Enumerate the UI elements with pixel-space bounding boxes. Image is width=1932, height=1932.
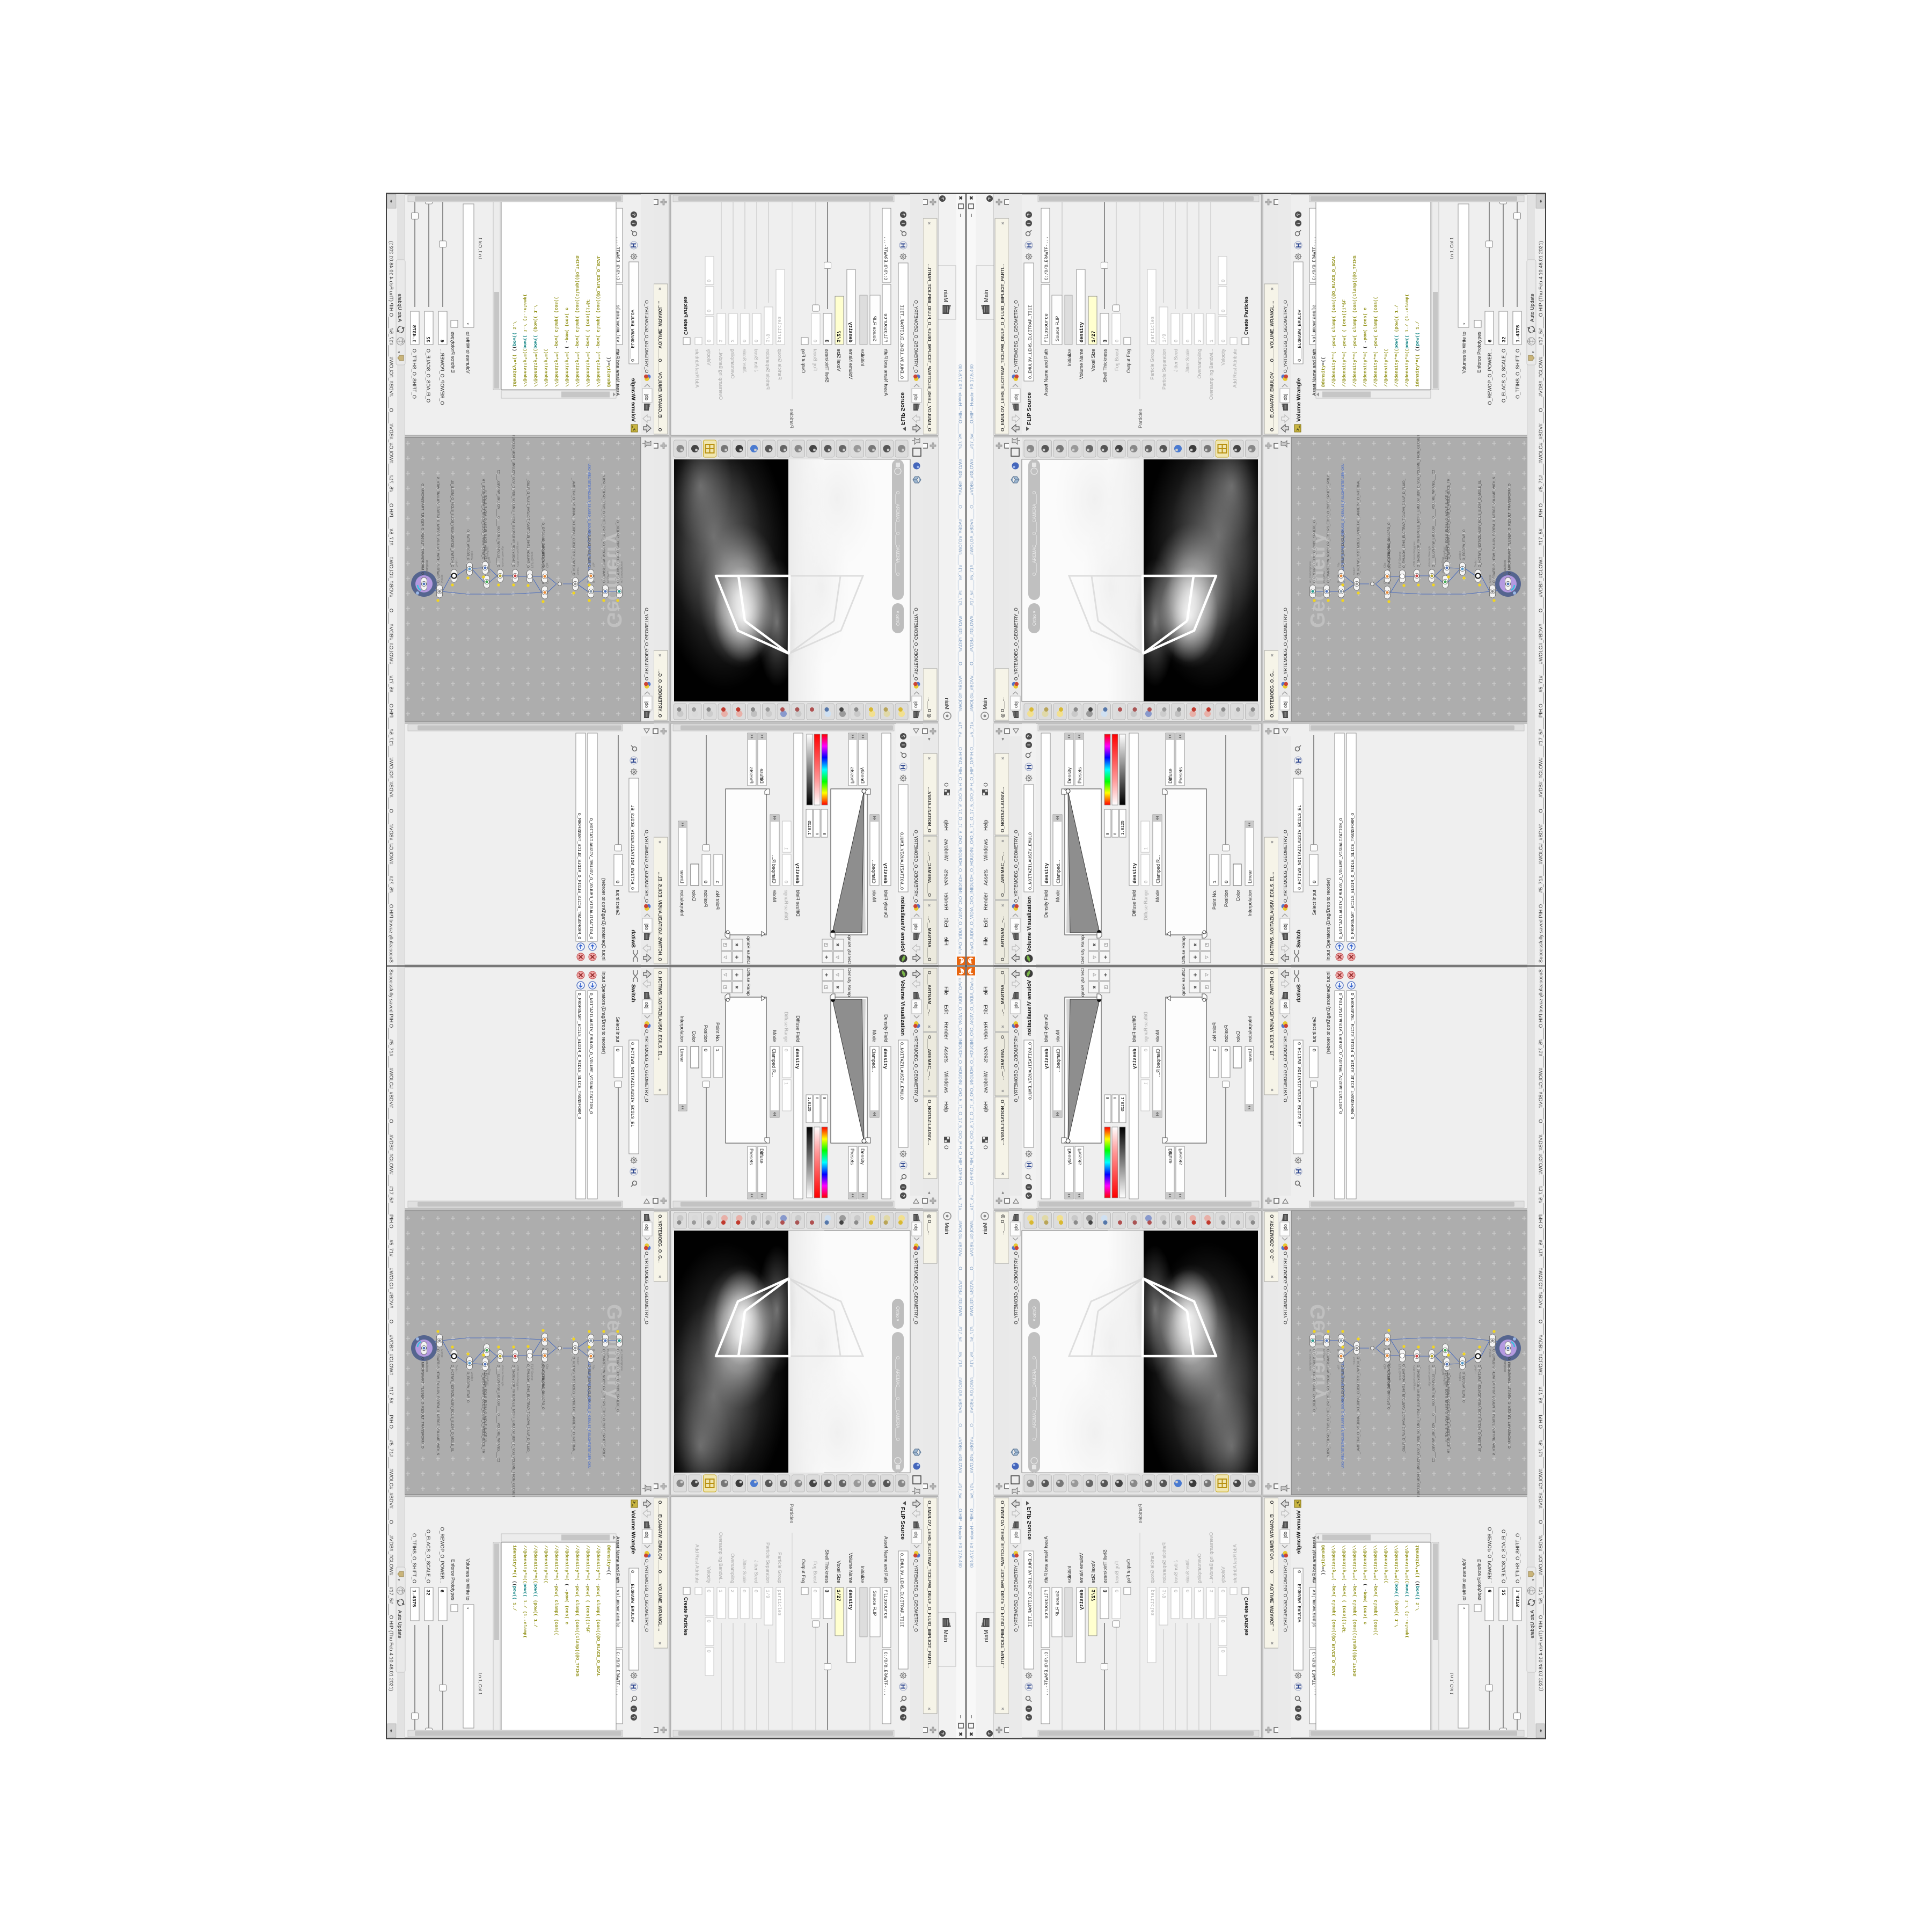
svg-text:Ortho ▾: Ortho ▾ <box>895 610 901 626</box>
svg-text:obj: obj <box>913 701 919 708</box>
svg-text:PolyWire: PolyWire <box>606 571 609 583</box>
svg-text:1: 1 <box>783 847 788 850</box>
svg-text://@density*=( -pow( ( (cos(: //@density*=( -pow( ( (cos((1*$F <box>1342 299 1347 387</box>
svg-text:✖: ✖ <box>1001 222 1005 225</box>
svg-text:Presets: Presets <box>1178 1148 1183 1165</box>
svg-text:O____ARTNAM__–...: O____ARTNAM__–... <box>1000 916 1005 961</box>
svg-text:density: density <box>847 1590 853 1610</box>
svg-text://@density*=((pow(( (pow((: //@density*=((pow(( (pow(( 1./ <box>533 305 538 387</box>
svg-text:✖: ✖ <box>1001 1172 1005 1175</box>
svg-text:Color: Color <box>691 890 697 902</box>
svg-text:Transform: Transform <box>425 1357 428 1372</box>
svg-text:Interpolation: Interpolation <box>679 1015 685 1042</box>
svg-text:Voxel Size: Voxel Size <box>1091 349 1096 371</box>
svg-text:Density Ramp: Density Ramp <box>1080 935 1085 964</box>
svg-text:Presets: Presets <box>749 1148 754 1165</box>
svg-text:1: 1 <box>1209 1590 1214 1592</box>
svg-text:1.8125: 1.8125 <box>807 1097 811 1112</box>
svg-text:▽: ▽ <box>1092 973 1097 977</box>
svg-text:✖: ✖ <box>1001 1707 1005 1710</box>
svg-text:i: i <box>1027 223 1031 224</box>
svg-text:O_EGDEW_ETAR_O: O_EGDEW_ETAR_O <box>466 529 469 560</box>
svg-text:O_YRTEMOEG_O_GEOMETRY_O: O_YRTEMOEG_O_GEOMETRY_O <box>913 1029 919 1102</box>
svg-text:Linear: Linear <box>679 870 685 883</box>
svg-text:2: 2 <box>1197 340 1203 342</box>
svg-text:obj: obj <box>1283 924 1288 930</box>
svg-text:C:/O/O_ERAWTF-...: C:/O/O_ERAWTF-... <box>1044 236 1049 280</box>
svg-text:O____ELGNARW_EMULOV: O____ELGNARW_EMULOV <box>630 1570 635 1623</box>
svg-text:1.8125: 1.8125 <box>1121 820 1125 835</box>
svg-text:✖: ✖ <box>927 839 931 843</box>
svg-text:File: File <box>983 936 989 946</box>
svg-text:Diffuse: Diffuse <box>759 769 764 784</box>
svg-text://@density*=( ( -pow( (cos(: //@density*=( ( -pow( (cos( c <box>1363 1545 1368 1624</box>
svg-text:Auto Update: Auto Update <box>1529 294 1535 322</box>
svg-text:1/27: 1/27 <box>836 1590 841 1601</box>
svg-text:0: 0 <box>614 881 620 883</box>
svg-text://@density*=((pow(( (pow((: //@density*=((pow(( (pow(( 1./ <box>1394 305 1400 387</box>
svg-text:Fog Boost: Fog Boost <box>1114 1561 1119 1584</box>
svg-text:Render: Render <box>983 1022 989 1040</box>
svg-text://@density*=( -pow( clamp( (: //@density*=( -pow( clamp( (cos((@O_ELAC… <box>1331 255 1337 387</box>
svg-text:0: 0 <box>753 340 758 342</box>
svg-text:Select Input: Select Input <box>615 890 620 916</box>
svg-text:–: – <box>957 1715 963 1718</box>
svg-text:O_WOLEB_PILC_DNUORG_O: O_WOLEB_PILC_DNUORG_O <box>1388 1364 1391 1410</box>
svg-text:Density Field: Density Field <box>1043 890 1049 918</box>
svg-text:Fog Boost: Fog Boost <box>813 1561 818 1584</box>
svg-text:✖: ✖ <box>835 943 840 947</box>
svg-text:6: 6 <box>439 340 444 342</box>
svg-text:i: i <box>901 1708 905 1709</box>
svg-text:obj: obj <box>913 924 919 930</box>
svg-text:0: 0 <box>1221 310 1226 312</box>
svg-text:◂▸: ◂▸ <box>389 199 393 203</box>
svg-text:Asset Name and Path: Asset Name and Path <box>1043 349 1049 396</box>
svg-text:◳: ◳ <box>723 943 728 947</box>
svg-text:0: 0 <box>614 1049 620 1051</box>
svg-text:1/27: 1/27 <box>836 331 841 342</box>
svg-text:O_YRTEMOEG_O_GEOMETRY_O: O_YRTEMOEG_O_GEOMETRY_O <box>913 1252 919 1324</box>
svg-text:?: ? <box>631 213 636 216</box>
svg-text:Jitter Seed: Jitter Seed <box>753 349 759 372</box>
svg-text:▽: ▽ <box>835 973 840 977</box>
svg-text:◳: ◳ <box>1103 985 1108 990</box>
svg-text:Asset Name and Path: Asset Name and Path <box>883 349 889 396</box>
svg-text:Asset Name and Path: Asset Name and Path <box>1043 1536 1049 1583</box>
svg-text:Oversampling: Oversampling <box>730 349 735 379</box>
svg-text:Initialize: Initialize <box>860 1565 865 1583</box>
svg-text:Edit: Edit <box>943 1005 949 1014</box>
svg-text:O_HCTIWS_YRTEMOEG_LANRETXE_LAN: O_HCTIWS_YRTEMOEG_LANRETXE_LANRETNI_O_IN… <box>1357 478 1360 575</box>
svg-text:Windows: Windows <box>943 1071 949 1093</box>
svg-text:O_REWOP_O_POWER...: O_REWOP_O_POWER... <box>1487 1527 1492 1583</box>
svg-text:C:/O/O_ERAWTF-...: C:/O/O_ERAWTF-... <box>883 236 888 280</box>
svg-text:✚: ✚ <box>734 955 739 959</box>
svg-text:O_HCTIWS_NOITAZILAUSIV_ECILS_E: O_HCTIWS_NOITAZILAUSIV_ECILS_ELDIM_O_MID… <box>1479 480 1482 567</box>
svg-text:O____AREMAC_—...: O____AREMAC_—... <box>927 852 932 897</box>
svg-text:Diffuse: Diffuse <box>1168 1148 1173 1163</box>
svg-text:Add Rest Attribute: Add Rest Attribute <box>1232 1544 1238 1583</box>
svg-text:Velocity: Velocity <box>1220 1567 1226 1584</box>
svg-text:O____ARTNAM__–...: O____ARTNAM__–... <box>1000 971 1005 1016</box>
svg-text:3: 3 <box>1103 1590 1108 1592</box>
svg-text:2: 2 <box>729 340 735 342</box>
svg-text:◳: ◳ <box>1204 985 1209 990</box>
svg-text:◎ O___...: ◎ O___... <box>927 1214 932 1235</box>
svg-text:Volume Name: Volume Name <box>848 349 853 379</box>
svg-text:O_ECAFRUS_HTIW_EMULOV_EGREM_O_: O_ECAFRUS_HTIW_EMULOV_EGREM_O_MERGE_VOLU… <box>1493 1349 1496 1455</box>
svg-text:c:/o/O_AIDIV_O_VIDIA_O/O_INIDU: c:/o/O_AIDIV_O_VIDIA_O/O_INIDUOH_O_HOUDI… <box>958 978 963 1568</box>
svg-text:FLIP Source: FLIP Source <box>1399 1364 1402 1380</box>
svg-text:0: 0 <box>812 1590 817 1592</box>
svg-text:Initialize: Initialize <box>860 349 865 367</box>
svg-text:Particle Group: Particle Group <box>1150 349 1155 380</box>
svg-text:◳: ◳ <box>824 985 829 990</box>
svg-text:Point No.: Point No. <box>1212 1022 1217 1042</box>
svg-text:0: 0 <box>702 881 708 883</box>
svg-text:O_HCTIWS_YRTEMOEG_LANRETXE_LAN: O_HCTIWS_YRTEMOEG_LANRETXE_LANRETNI_O_IN… <box>572 478 575 575</box>
svg-text:O_EMULOV_LEHS_ELCITRAP_TICILPM: O_EMULOV_LEHS_ELCITRAP_TICILPMI_DIULF_O_… <box>1000 1501 1005 1668</box>
svg-text:✚: ✚ <box>1103 955 1108 959</box>
svg-text:O_YRTEMOEG_O_GEOMETRY_O: O_YRTEMOEG_O_GEOMETRY_O <box>1013 1252 1019 1324</box>
svg-text:▾: ▾ <box>1532 351 1535 353</box>
svg-text:Clamped...: Clamped... <box>871 860 876 883</box>
svg-text:Help: Help <box>943 819 949 831</box>
svg-text:?: ? <box>901 1716 905 1719</box>
svg-text:0: 0 <box>706 280 711 282</box>
svg-text:✖: ✖ <box>734 985 739 989</box>
svg-text:O_NOITAZILAUSIV....: O_NOITAZILAUSIV.... <box>927 787 932 832</box>
svg-text:Diffuse Ramp: Diffuse Ramp <box>746 936 751 964</box>
svg-text:✖: ✖ <box>927 757 931 760</box>
svg-text:Jitter Seed: Jitter Seed <box>1173 349 1179 372</box>
svg-text:Jitter Scale: Jitter Scale <box>742 349 747 373</box>
svg-text:VDB from Polygons: VDB from Polygons <box>1413 541 1416 567</box>
svg-text:O_EMULOV_LEHS_ELCITRAP_TICILPM: O_EMULOV_LEHS_ELCITRAP_TICILPMI_DIULF_O_… <box>1000 264 1005 431</box>
svg-text:Volume Wrangle: Volume Wrangle <box>630 378 636 422</box>
svg-text:Clip: Clip <box>545 1364 548 1369</box>
svg-text:density: density <box>794 1049 800 1069</box>
svg-text:O_EMARFERIW_NOGYLOP_EREHPS_EBU: O_EMARFERIW_NOGYLOP_EREHPS_EBUC_O_CUBE_S… <box>1327 1349 1330 1457</box>
svg-text:flipsource: flipsource <box>1044 1590 1049 1619</box>
svg-text:Main: Main <box>983 1630 990 1642</box>
svg-text:obj: obj <box>1013 924 1019 930</box>
svg-text:32: 32 <box>1502 336 1507 342</box>
svg-text:File: File <box>591 562 595 567</box>
svg-text:O_NOITAZILAUSIV_EMULO: O_NOITAZILAUSIV_EMULO <box>899 1042 904 1100</box>
svg-text:Main: Main <box>983 1223 989 1234</box>
svg-text:i: i <box>1296 1708 1301 1709</box>
svg-text:2: 2 <box>729 1590 735 1592</box>
svg-text:O_YRTEMOEG_O_GEOMETRY_O: O_YRTEMOEG_O_GEOMETRY_O <box>913 608 919 680</box>
svg-text:Oversampling Bandwi...: Oversampling Bandwi... <box>1209 349 1214 400</box>
svg-text://@density*=((pow(( 1./ (1.-: //@density*=((pow(( 1./ (1.-clamp( <box>1404 294 1410 387</box>
svg-text:an_CubeSphere: an_CubeSphere <box>1309 561 1312 583</box>
svg-text:Create Particles: Create Particles <box>1243 1597 1249 1636</box>
svg-text:✚: ✚ <box>824 973 829 977</box>
svg-text:O_YRTEMOEG_O_GEOMETRY_O: O_YRTEMOEG_O_GEOMETRY_O <box>644 1029 649 1102</box>
svg-text:density: density <box>1132 863 1138 883</box>
svg-text:Main: Main <box>943 1223 949 1234</box>
svg-text:0: 0 <box>1224 1049 1230 1051</box>
svg-text:0: 0 <box>1221 1620 1226 1622</box>
svg-text:3: 3 <box>1103 340 1108 342</box>
svg-text:0: 0 <box>753 1590 758 1592</box>
svg-text:1: 1 <box>714 881 720 883</box>
svg-text:–: – <box>957 214 963 217</box>
svg-text:obj: obj <box>913 1532 919 1538</box>
svg-text:O_MROFSNART_ECILS_ELDIM_O_MIDL: O_MROFSNART_ECILS_ELDIM_O_MIDLE_SLICE_TR <box>1447 1373 1451 1454</box>
svg-text:O_NOITAZILAUSIV....: O_NOITAZILAUSIV.... <box>1000 787 1005 832</box>
svg-text:1.4375: 1.4375 <box>1516 1590 1521 1607</box>
svg-text:Switch: Switch <box>1296 984 1302 1002</box>
svg-text:O_YRTEMOEG_O_GEOMETRY_O: O_YRTEMOEG_O_GEOMETRY_O <box>644 1252 649 1324</box>
svg-text:i: i <box>1027 1708 1031 1709</box>
svg-text:O_EMULOV_LEHS_ELCITRAP_TICILPM: O_EMULOV_LEHS_ELCITRAP_TICILPMI_DIULF_D_… <box>1403 1364 1406 1454</box>
svg-text:O_MROFSNART_ECILS_ELDIM_O_MIDL: O_MROFSNART_ECILS_ELDIM_O_MIDLE_SLICE_TR… <box>1351 813 1356 939</box>
svg-text:▾: ▾ <box>397 1579 400 1581</box>
svg-text:PolyWire: PolyWire <box>606 1349 609 1361</box>
svg-text:VDB from Polygons: VDB from Polygons <box>516 1365 519 1391</box>
svg-text:O_YRTEMOEG_O_GEOMETRY_O: O_YRTEMOEG_O_GEOMETRY_O <box>1283 830 1288 903</box>
svg-text:particles: particles <box>777 1590 782 1616</box>
svg-text:Volume Wrangle: Volume Wrangle <box>630 1510 636 1554</box>
svg-text:Source FLIP: Source FLIP <box>1055 316 1060 341</box>
svg-text:Mode: Mode <box>1055 890 1060 902</box>
svg-text:Particle Separation: Particle Separation <box>765 1542 771 1583</box>
svg-text:Merge: Merge <box>1489 574 1492 583</box>
svg-text:O_MROFSNART_TLUSER_O_RESULT_TR: O_MROFSNART_TLUSER_O_RESULT_TRANSFORM_O <box>421 1357 425 1448</box>
svg-text:O_MROFSNART_TLUSER_O_RESULT_TR: O_MROFSNART_TLUSER_O_RESULT_TRANSFORM_O <box>1508 484 1512 575</box>
svg-text:O_WOLEB_PILC_DNUORG_O: O_WOLEB_PILC_DNUORG_O <box>1388 522 1391 568</box>
svg-text:?: ? <box>1027 1195 1031 1197</box>
svg-text:@density=((: @density=(( <box>1321 357 1326 387</box>
svg-text:an_CubeSphere: an_CubeSphere <box>1309 1349 1312 1371</box>
svg-text:Linear: Linear <box>679 1049 685 1062</box>
svg-text:Velocity: Velocity <box>706 349 712 366</box>
svg-text:0: 0 <box>1312 1049 1318 1051</box>
svg-text:Presets: Presets <box>850 767 855 784</box>
svg-text:Fog Boost: Fog Boost <box>1114 349 1119 371</box>
svg-text:0: 0 <box>706 1590 711 1592</box>
svg-text:0: 0 <box>1224 881 1230 883</box>
svg-text:Enforce Prototypes: Enforce Prototypes <box>1476 332 1482 373</box>
svg-text:32: 32 <box>1502 1590 1507 1596</box>
svg-text:File: File <box>1337 562 1341 567</box>
svg-text:O_WOLEB_PILC_DNUORG_O: O_WOLEB_PILC_DNUORG_O <box>541 1364 544 1410</box>
svg-text:density: density <box>1044 1049 1050 1069</box>
svg-text:0: 0 <box>783 881 788 883</box>
svg-text:0: 0 <box>1221 1590 1226 1592</box>
svg-text:Edit: Edit <box>983 1005 989 1014</box>
svg-text:density: density <box>847 322 853 342</box>
svg-text:6: 6 <box>1488 340 1493 342</box>
svg-text:FLIP Source: FLIP Source <box>899 1507 906 1540</box>
svg-text:1: 1 <box>1144 1082 1149 1085</box>
svg-text:◎ O___...: ◎ O___... <box>927 697 932 718</box>
svg-text:32: 32 <box>425 1590 430 1596</box>
svg-text:?: ? <box>940 197 945 200</box>
svg-text:density: density <box>1132 1049 1138 1069</box>
svg-text:0: 0 <box>741 1590 747 1592</box>
svg-text:Source FLIP: Source FLIP <box>872 1591 877 1616</box>
svg-text:O____AREMAC____O____CAMERA____: O____AREMAC____O____CAMERA____O <box>1032 491 1037 576</box>
svg-text://@density*=((: //@density*=(( <box>543 349 548 387</box>
svg-text://@density*=( -pow( ( (cos(: //@density*=( -pow( ( (cos((1*$F <box>585 299 590 387</box>
svg-text:Color: Color <box>691 1030 697 1042</box>
svg-text:✖: ✖ <box>1193 985 1198 989</box>
svg-text:?: ? <box>1296 213 1301 216</box>
svg-text:Create Particles: Create Particles <box>683 1597 689 1636</box>
svg-text:Source FLIP: Source FLIP <box>1055 1591 1060 1616</box>
svg-text:?: ? <box>1027 213 1031 216</box>
svg-text:✖: ✖ <box>1271 1088 1275 1092</box>
svg-text:O_HCTIWS_NOITAZILAUSIV_ECILS_E: O_HCTIWS_NOITAZILAUSIV_ECILS_EL <box>630 805 635 890</box>
svg-text:?: ? <box>1027 735 1031 737</box>
svg-text:Volumes to Write to: Volumes to Write to <box>1461 332 1467 374</box>
svg-text:O_EREHPS_EBUC_O_CUBE_SPHERE_O: O_EREHPS_EBUC_O_CUBE_SPHERE_O <box>616 520 619 583</box>
svg-text:Create Particles: Create Particles <box>1243 296 1249 335</box>
svg-text:O_EREHPS_EBUC_O_CUBE_SPHERE_O: O_EREHPS_EBUC_O_CUBE_SPHERE_O <box>616 1349 619 1412</box>
svg-text:◂: ◂ <box>1000 1191 1005 1194</box>
svg-text:density: density <box>794 863 800 883</box>
svg-text:Oversampling Bandwi...: Oversampling Bandwi... <box>718 349 723 400</box>
svg-text:Add Rest Attribute: Add Rest Attribute <box>1232 349 1238 388</box>
svg-text:Velocity: Velocity <box>1220 349 1226 366</box>
svg-text:▽: ▽ <box>835 955 840 959</box>
svg-text:✖: ✖ <box>927 1172 931 1175</box>
svg-text:flipsource: flipsource <box>883 1590 888 1619</box>
svg-text:Render: Render <box>943 1022 949 1040</box>
svg-text:Main: Main <box>943 698 949 709</box>
svg-text:Clip: Clip <box>545 563 548 568</box>
svg-text:Density: Density <box>860 767 865 784</box>
svg-text:Initialize: Initialize <box>1067 349 1072 367</box>
svg-text:Presets: Presets <box>850 1148 855 1165</box>
svg-text:Point No.: Point No. <box>715 1022 720 1042</box>
svg-text:Presets: Presets <box>1178 767 1183 784</box>
svg-text:Diffuse Field: Diffuse Field <box>1131 1015 1137 1042</box>
svg-text://@density*=( -pow( clamp( (: //@density*=( -pow( clamp( (cos((clamp((… <box>575 255 580 387</box>
svg-text:Velocity: Velocity <box>706 1567 712 1584</box>
svg-text:Volume Wrangle: Volume Wrangle <box>1296 1510 1302 1554</box>
svg-text:File: File <box>983 986 989 996</box>
svg-text:✖: ✖ <box>927 1089 931 1093</box>
svg-text:◎ O___...: ◎ O___... <box>1000 1214 1005 1235</box>
svg-text:O_NOITAZILAUSIV....: O_NOITAZILAUSIV.... <box>1000 1100 1005 1145</box>
svg-text:Density Ramp: Density Ramp <box>847 935 852 964</box>
svg-text:VDB from Polygons: VDB from Polygons <box>1413 1365 1416 1391</box>
svg-text:Wedge: Wedge <box>470 551 473 560</box>
svg-text://@density*=((: //@density*=(( <box>1384 1545 1389 1583</box>
svg-text:Density Ramp: Density Ramp <box>847 968 852 997</box>
svg-text:O____AREMAC____O____CAMERA____: O____AREMAC____O____CAMERA____O <box>895 1356 900 1441</box>
svg-text:O_HCTIWS_NOITAZILAUSIV_ECILS_E: O_HCTIWS_NOITAZILAUSIV_ECILS_EL <box>1297 1042 1302 1127</box>
svg-text:Select Input: Select Input <box>615 1016 620 1042</box>
svg-text:O_ELIF_BDV_DUOLC_O: O_ELIF_BDV_DUOLC_O <box>1342 530 1345 567</box>
svg-text:✚: ✚ <box>734 973 739 977</box>
svg-text:3: 3 <box>824 1590 829 1592</box>
svg-text:2: 2 <box>1197 1590 1203 1592</box>
svg-text:obj: obj <box>1013 394 1019 400</box>
svg-text:density: density <box>882 863 888 883</box>
svg-text:O____ELGNARW_EMULOV: O____ELGNARW_EMULOV <box>630 309 635 362</box>
svg-text:Volume Visualization: Volume Visualization <box>1026 980 1033 1036</box>
svg-text:O_REWOP_O_POWER...: O_REWOP_O_POWER... <box>1487 349 1492 405</box>
svg-text:Main: Main <box>983 290 990 302</box>
svg-text:0: 0 <box>1144 1049 1149 1051</box>
svg-text://@density*=( ( -pow( (cos(: //@density*=( ( -pow( (cos( c <box>564 308 569 387</box>
svg-text:O_TFIHS_O_SHIFT_O: O_TFIHS_O_SHIFT_O <box>1515 1533 1520 1583</box>
svg-text:◂▸: ◂▸ <box>1539 1729 1543 1733</box>
svg-text:Particle Separation: Particle Separation <box>1161 349 1167 390</box>
svg-text:O_EREHPS_EBUC_O_CUBE_SPHERE_O: O_EREHPS_EBUC_O_CUBE_SPHERE_O <box>1313 520 1316 583</box>
svg-text:O____ELGNARW_EMULOV____O____VO: O____ELGNARW_EMULOV____O____VOLUME_WRANG… <box>1269 1501 1275 1631</box>
svg-text:density: density <box>1079 322 1085 342</box>
svg-text:O_NOITAZILAUSIV_EMULOV_O_VOLUM: O_NOITAZILAUSIV_EMULOV_O_VOLUME_VISUALIZ… <box>1339 993 1344 1114</box>
svg-text:O_HCTIWS_NOITAZILAUSIV_ECILS_E: O_HCTIWS_NOITAZILAUSIV_ECILS_EL <box>1297 805 1302 890</box>
svg-text:✖: ✖ <box>657 1275 661 1278</box>
svg-text:O_EMULOV_LEHS_ELCITRAP_TICILPM: O_EMULOV_LEHS_ELCITRAP_TICILPMI_DIULF_O_… <box>927 1501 932 1668</box>
svg-text:Density Field: Density Field <box>883 1014 889 1042</box>
svg-text:O_YRTEMOEG_O_GEOMETRY_O: O_YRTEMOEG_O_GEOMETRY_O <box>644 608 649 680</box>
svg-text:O____AREMAC_—...: O____AREMAC_—... <box>1000 1035 1005 1080</box>
svg-text:Position: Position <box>1224 1025 1229 1042</box>
svg-text:?: ? <box>987 197 992 200</box>
svg-text:Presets: Presets <box>1077 767 1082 784</box>
svg-text:Particles: Particles <box>1138 1504 1144 1524</box>
svg-text:Diffuse Field: Diffuse Field <box>795 890 801 917</box>
svg-text:Density Ramp: Density Ramp <box>1080 968 1085 997</box>
svg-text:Mode: Mode <box>772 1030 777 1042</box>
svg-text:Diffuse Field: Diffuse Field <box>795 1015 801 1042</box>
svg-text:an_CubeSphere: an_CubeSphere <box>620 561 623 583</box>
svg-text:O_HCTIWS_NOITAZILAUSIV_ECILS_E: O_HCTIWS_NOITAZILAUSIV_ECILS_ELDIM_O_MID… <box>450 1365 453 1452</box>
svg-text:✖: ✖ <box>1271 1642 1275 1645</box>
svg-text:0: 0 <box>1115 1590 1120 1592</box>
svg-text:obj: obj <box>913 1002 919 1008</box>
svg-text:?: ? <box>901 213 905 216</box>
svg-text:Mode: Mode <box>1155 1030 1160 1042</box>
svg-text:O_HCTIWS_NOITAZILAUSIV_ECILS_E: O_HCTIWS_NOITAZILAUSIV_ECILS_EL... <box>1269 971 1275 1060</box>
svg-text:1: 1 <box>783 1082 788 1085</box>
svg-text:Auto Update: Auto Update <box>397 1610 402 1638</box>
svg-text:Clip: Clip <box>1384 1364 1387 1369</box>
svg-text:Select Input: Select Input <box>1312 890 1317 916</box>
svg-text:O_HCTIWS_NOITAZILAUSIV_ECILS_E: O_HCTIWS_NOITAZILAUSIV_ECILS_EL... <box>1269 872 1275 961</box>
svg-text:✖: ✖ <box>1092 943 1097 947</box>
svg-text:▽: ▽ <box>723 955 728 959</box>
svg-text:✖: ✖ <box>957 196 963 200</box>
svg-text:Output Fog: Output Fog <box>1126 349 1131 373</box>
svg-text:obj: obj <box>913 394 919 400</box>
svg-text:0: 0 <box>814 1097 818 1100</box>
svg-text:Point No.: Point No. <box>715 890 720 910</box>
svg-text:O_NOITAZILAUSIV_EMULOV_O_VOLUM: O_NOITAZILAUSIV_EMULOV_O_VOLUME_VISUALIZ… <box>588 818 593 939</box>
svg-text:✖: ✖ <box>734 943 739 947</box>
svg-text:◳: ◳ <box>1204 943 1209 947</box>
svg-text:O_YRTEMOEG_O_GEOMETRY_O: O_YRTEMOEG_O_GEOMETRY_O <box>1013 830 1019 903</box>
svg-text:0: 0 <box>1221 340 1226 342</box>
svg-text:Volumes to Write to: Volumes to Write to <box>465 332 471 374</box>
svg-text:0: 0 <box>1185 340 1191 342</box>
svg-text:Help: Help <box>983 819 989 831</box>
svg-text:O_ELIF_BDV_DUOLC_O: O_ELIF_BDV_DUOLC_O <box>587 530 590 567</box>
svg-text:Shell Thickness: Shell Thickness <box>1102 349 1108 383</box>
svg-text:i: i <box>1027 1187 1031 1188</box>
svg-text:Ortho ▾: Ortho ▾ <box>895 1306 901 1322</box>
